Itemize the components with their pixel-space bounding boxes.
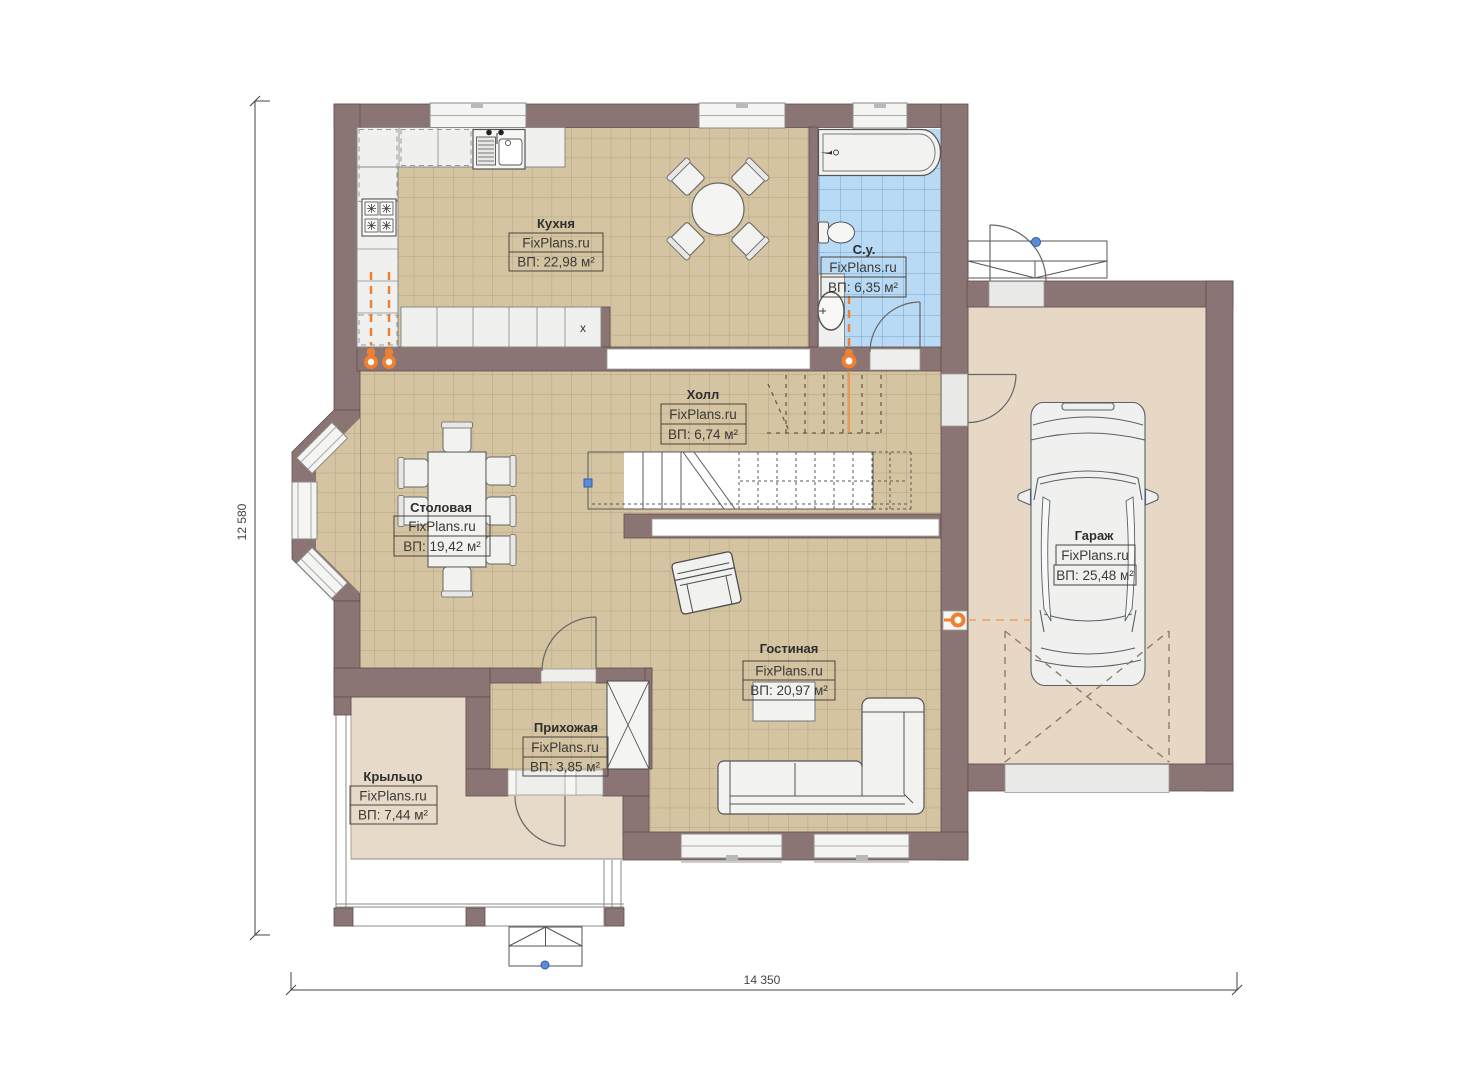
svg-text:ВП: 25,48 м²: ВП: 25,48 м² [1056, 568, 1134, 583]
svg-text:12 580: 12 580 [235, 503, 249, 540]
svg-text:С.у.: С.у. [853, 242, 876, 257]
svg-text:FixPlans.ru: FixPlans.ru [359, 789, 427, 804]
svg-text:ВП: 6,35 м²: ВП: 6,35 м² [828, 280, 899, 295]
svg-text:ВП: 19,42 м²: ВП: 19,42 м² [403, 539, 481, 554]
svg-text:FixPlans.ru: FixPlans.ru [669, 407, 737, 422]
svg-text:FixPlans.ru: FixPlans.ru [1061, 548, 1129, 563]
svg-text:FixPlans.ru: FixPlans.ru [829, 260, 897, 275]
svg-text:x: x [580, 321, 586, 335]
svg-text:ВП: 7,44 м²: ВП: 7,44 м² [358, 808, 429, 823]
svg-text:FixPlans.ru: FixPlans.ru [531, 740, 599, 755]
svg-text:Кухня: Кухня [537, 216, 575, 231]
svg-text:FixPlans.ru: FixPlans.ru [755, 664, 823, 679]
svg-text:Крыльцо: Крыльцо [363, 769, 422, 784]
svg-text:Холл: Холл [687, 387, 720, 402]
svg-text:ВП: 3,85 м²: ВП: 3,85 м² [530, 760, 601, 775]
svg-text:ВП: 20,97 м²: ВП: 20,97 м² [750, 683, 828, 698]
svg-text:Гостиная: Гостиная [760, 641, 819, 656]
svg-text:Гараж: Гараж [1075, 528, 1115, 543]
svg-text:ВП: 6,74 м²: ВП: 6,74 м² [668, 427, 739, 442]
svg-text:Столовая: Столовая [410, 500, 472, 515]
svg-text:FixPlans.ru: FixPlans.ru [522, 236, 590, 251]
svg-text:ВП: 22,98 м²: ВП: 22,98 м² [517, 255, 595, 270]
svg-text:FixPlans.ru: FixPlans.ru [408, 519, 476, 534]
svg-text:14 350: 14 350 [744, 973, 781, 987]
svg-text:Прихожая: Прихожая [534, 720, 598, 735]
